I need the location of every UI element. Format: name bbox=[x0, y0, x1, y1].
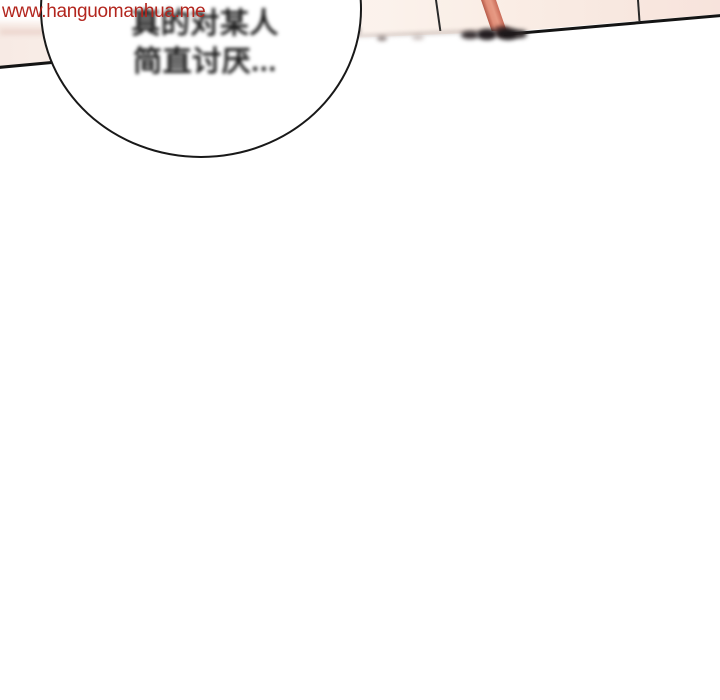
blurred-smudge bbox=[515, 30, 527, 38]
watermark-text: www.hanguomanhua.me bbox=[2, 1, 205, 23]
panel-edge-fade bbox=[344, 39, 464, 49]
panel-shading bbox=[0, 29, 46, 35]
comic-page: 真的对某人 简直讨厌... www.hanguomanhua.me bbox=[0, 0, 720, 700]
speech-line-2: 简直讨厌... bbox=[120, 43, 290, 81]
faint-smudge bbox=[377, 36, 387, 41]
faint-smudge bbox=[412, 35, 424, 40]
blurred-smudge bbox=[477, 29, 497, 40]
